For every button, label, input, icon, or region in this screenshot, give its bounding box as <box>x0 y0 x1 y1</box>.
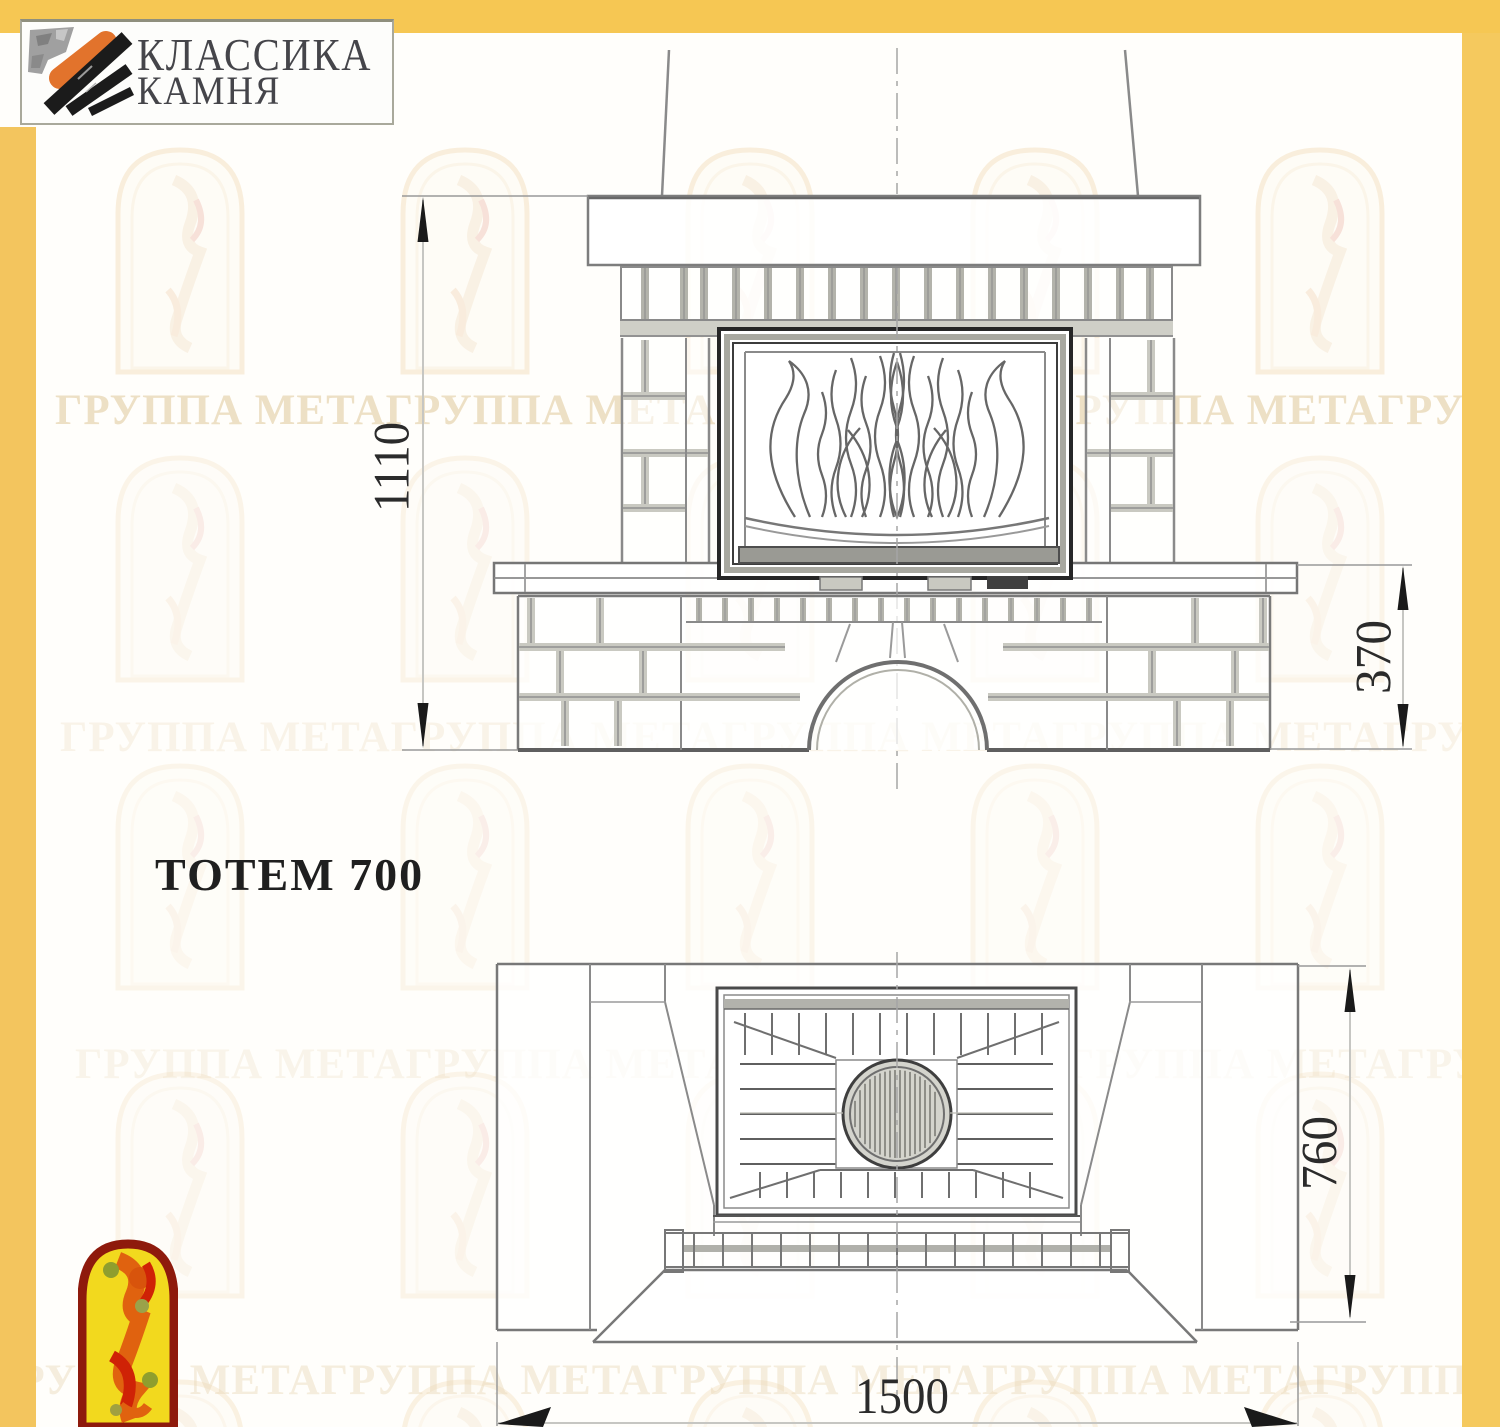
svg-text:760: 760 <box>1293 1116 1349 1190</box>
svg-text:1500: 1500 <box>855 1369 949 1425</box>
svg-text:1110: 1110 <box>365 422 421 512</box>
svg-text:370: 370 <box>1347 620 1403 694</box>
